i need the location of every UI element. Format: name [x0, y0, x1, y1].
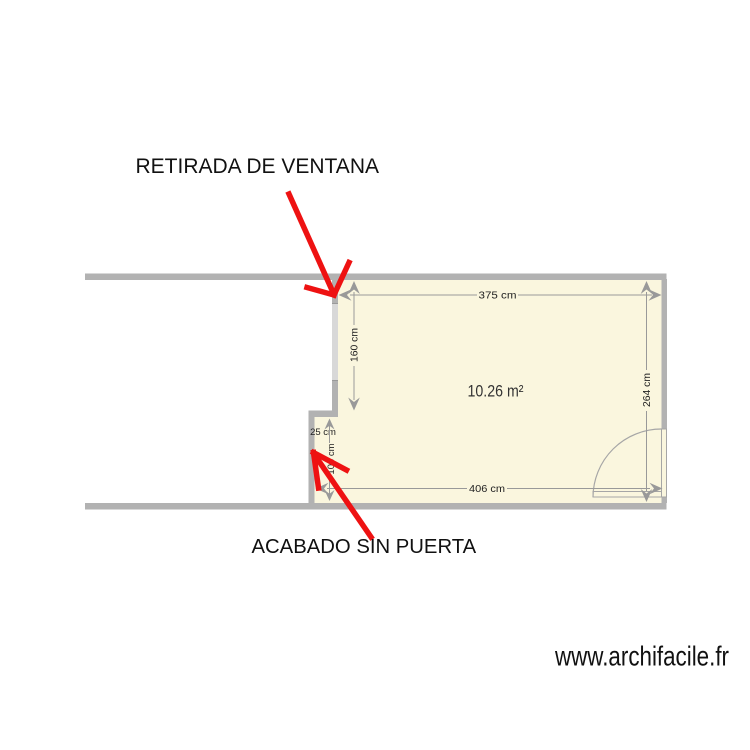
svg-text:www.archifacile.fr: www.archifacile.fr	[554, 641, 729, 672]
svg-text:375 cm: 375 cm	[479, 291, 517, 302]
svg-text:160 cm: 160 cm	[350, 328, 361, 362]
svg-text:RETIRADA DE VENTANA: RETIRADA DE VENTANA	[136, 155, 380, 178]
svg-text:10.26 m²: 10.26 m²	[468, 382, 524, 401]
svg-text:ACABADO SIN PUERTA: ACABADO SIN PUERTA	[252, 536, 477, 558]
svg-text:25 cm: 25 cm	[310, 427, 336, 438]
svg-text:264 cm: 264 cm	[642, 373, 653, 407]
svg-text:406 cm: 406 cm	[469, 484, 505, 495]
